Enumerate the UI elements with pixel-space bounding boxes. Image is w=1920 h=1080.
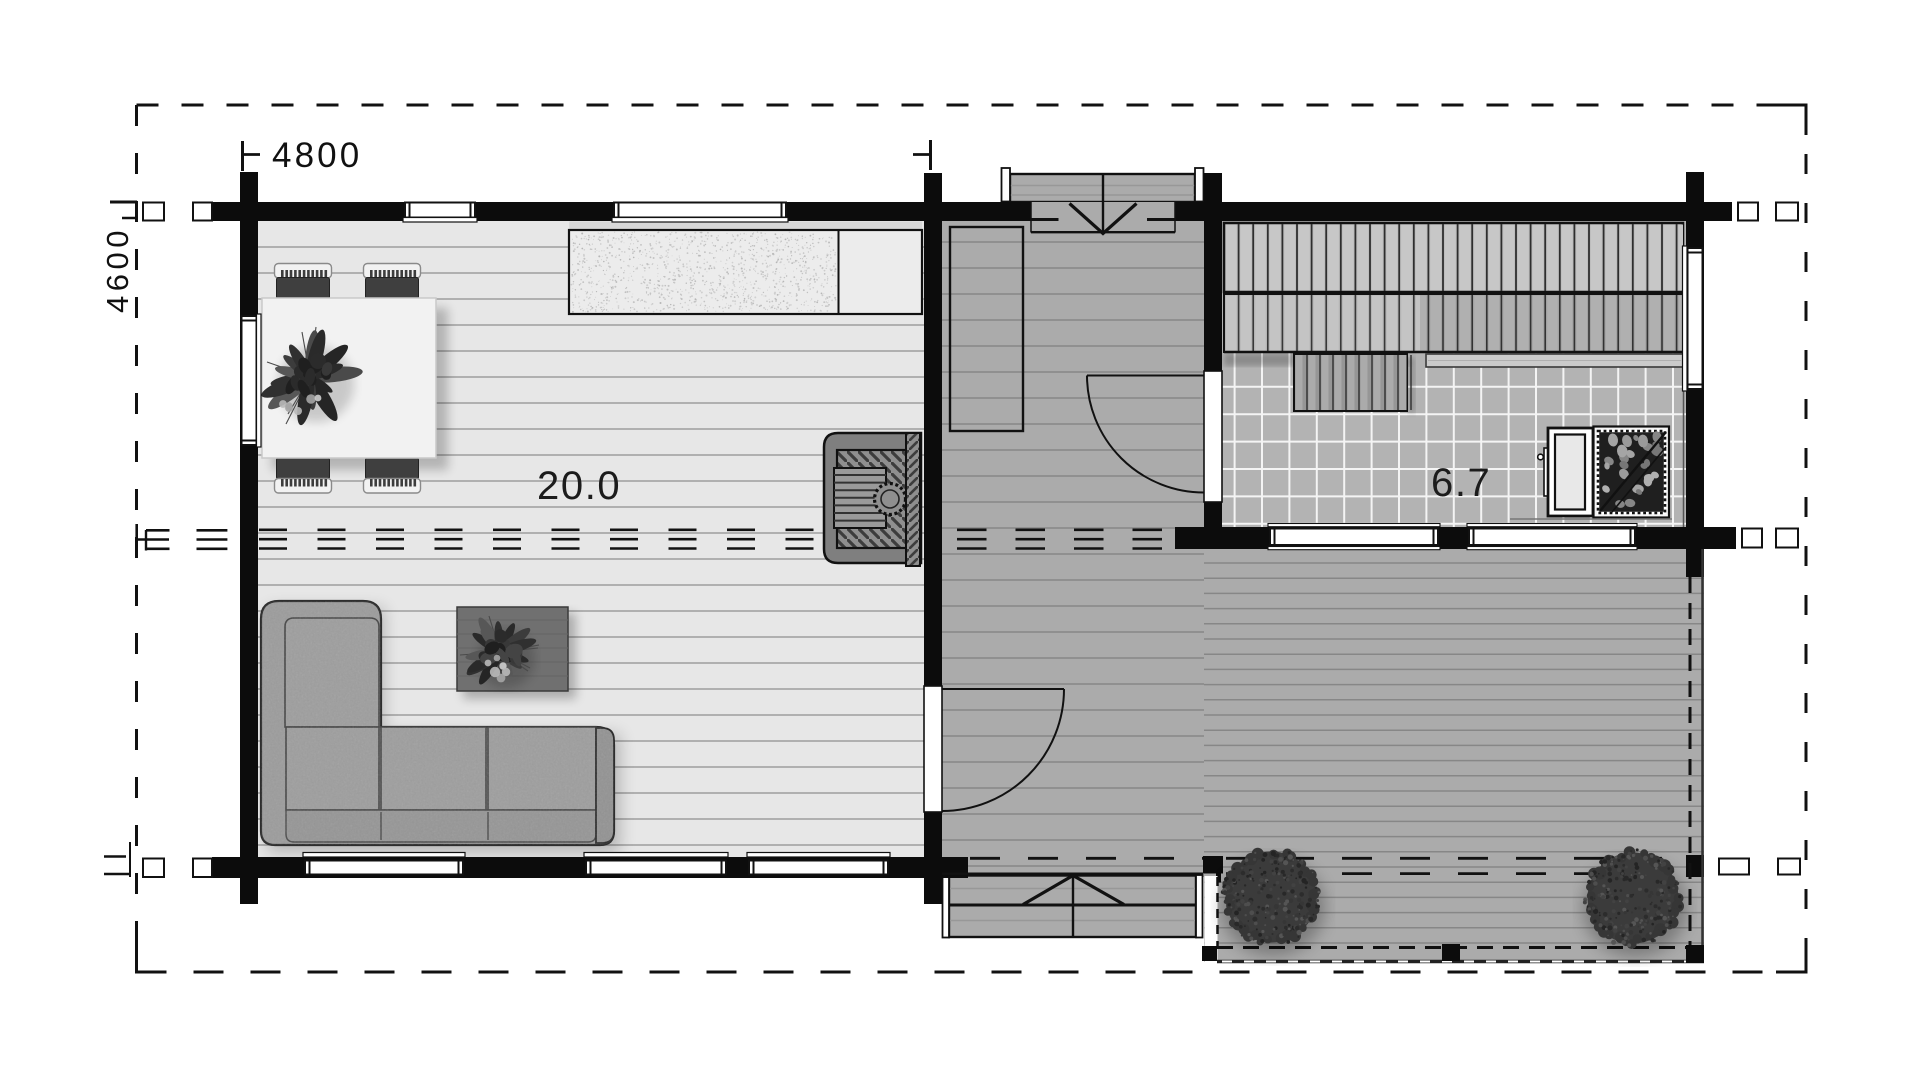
svg-text:20.0: 20.0 (537, 464, 621, 508)
svg-text:6.7: 6.7 (1431, 461, 1491, 505)
svg-text:4600: 4600 (100, 226, 135, 313)
svg-text:4800: 4800 (272, 136, 362, 175)
